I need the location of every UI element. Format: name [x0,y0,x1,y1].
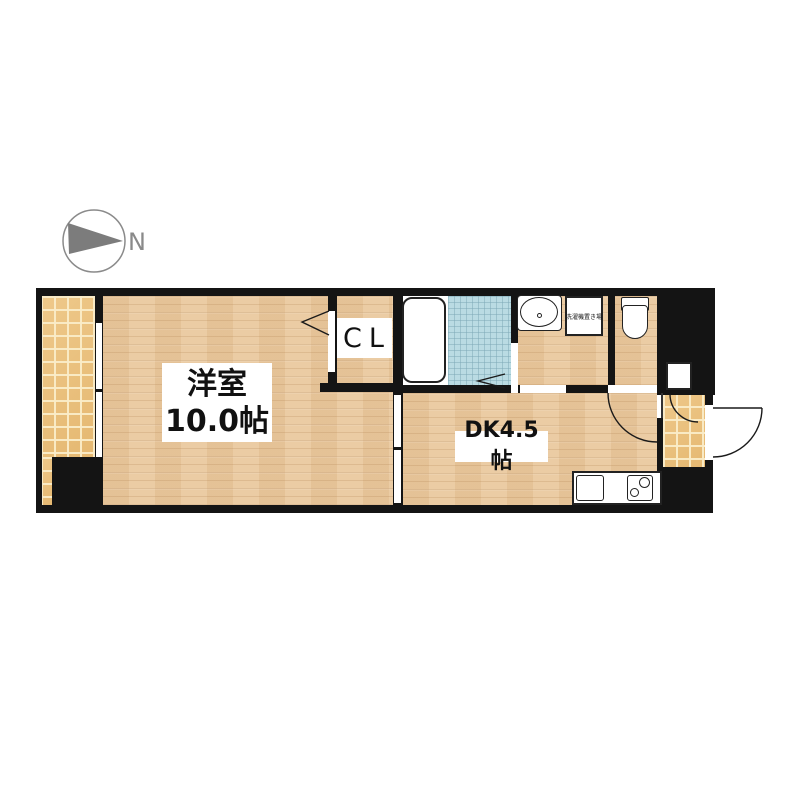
compass-circle [63,210,125,272]
window-lower [96,392,102,457]
floor-plan: 洗濯機置き場 N 洋室 10.0帖 DK4.5帖 CL [0,0,800,800]
washroom-door-opening [520,385,566,393]
wall-washroom-toilet [608,296,615,385]
bath-door [511,343,518,393]
closet-label: CL [337,318,392,358]
living-room-name: 洋室 [187,366,247,403]
closet-door [328,311,335,372]
kitchen-sink [576,475,604,501]
living-room-label: 洋室 10.0帖 [162,363,272,442]
entrance-floor [663,393,705,467]
front-door-arc [713,408,762,457]
toilet-door-opening [608,385,657,393]
entrance-step-edge [661,393,663,418]
dk-label: DK4.5帖 [455,431,548,462]
window-upper [96,323,102,389]
sliding-door-panel-2 [394,450,401,503]
laundry-label: 洗濯機置き場 [567,298,601,334]
north-label: N [128,228,146,256]
living-room-size: 10.0帖 [165,403,269,440]
wall-entrance-stub [657,418,663,467]
wash-basin [520,297,558,327]
wall-top [36,288,715,296]
bathroom-floor [448,296,511,385]
stove-burner-small [630,488,639,497]
laundry-space: 洗濯機置き場 [565,296,603,336]
sliding-door-panel-1 [394,395,401,447]
basin-drain [537,313,542,318]
north-arrow-icon [68,223,123,254]
bathtub [402,297,446,383]
compass [63,210,125,272]
balcony-floor-strip [41,457,52,505]
wall-closet-bottom [320,383,403,392]
toilet-bowl [622,305,648,339]
wall-mass-bottom-left [52,457,95,505]
shoe-cabinet [666,362,692,390]
front-door-opening [705,405,713,460]
wall-bottom [36,505,713,513]
balcony-floor [41,296,95,457]
stove-burner-large [639,477,650,488]
wall-left [36,288,42,513]
